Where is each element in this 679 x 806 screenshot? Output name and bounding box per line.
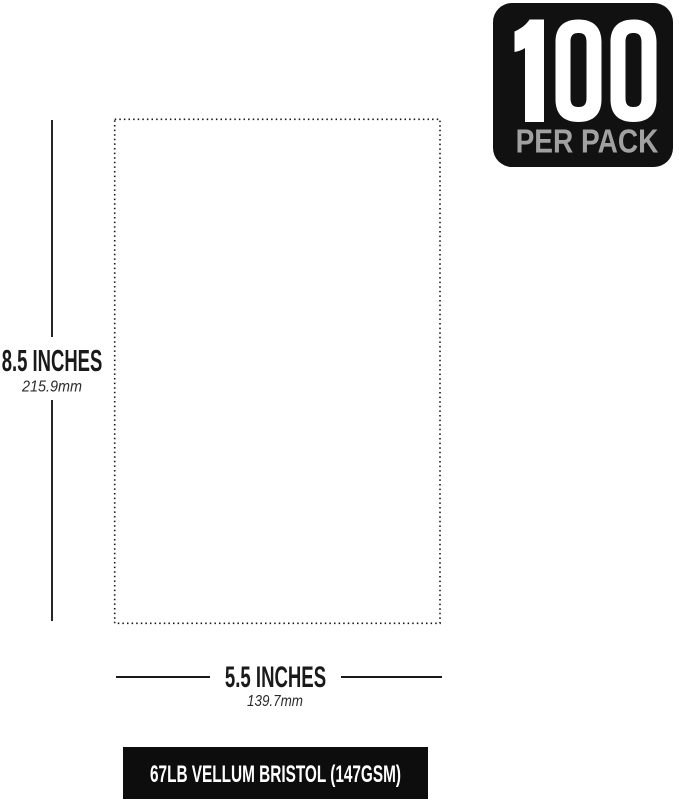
svg-text:215.9mm: 215.9mm: [21, 378, 82, 396]
svg-text:5.5 INCHES: 5.5 INCHES: [225, 662, 326, 694]
svg-text:8.5 INCHES: 8.5 INCHES: [2, 344, 103, 378]
svg-text:139.7mm: 139.7mm: [247, 693, 303, 710]
svg-text:PER PACK: PER PACK: [516, 123, 659, 160]
svg-text:67LB VELLUM BRISTOL (147GSM): 67LB VELLUM BRISTOL (147GSM): [150, 762, 401, 788]
